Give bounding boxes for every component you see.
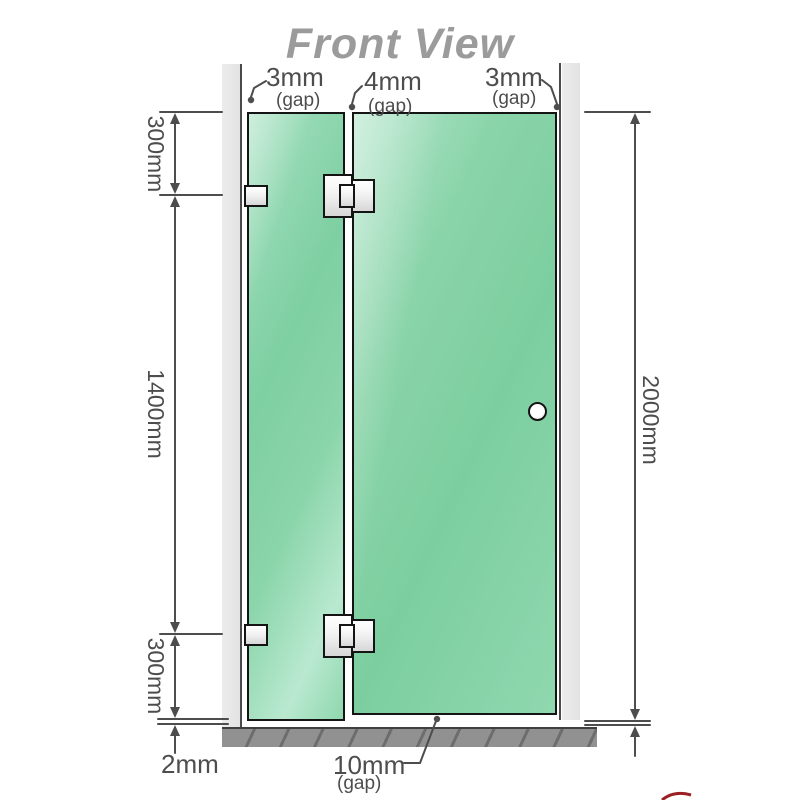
dim-label-300mm-top: 300mm (144, 99, 168, 209)
dim-label-2000mm: 2000mm (639, 365, 663, 475)
wall-bracket-bottom (244, 624, 268, 646)
gap-qualifier-top-left: (gap) (276, 90, 320, 112)
dim-label-300mm-bottom: 300mm (144, 621, 168, 731)
dim-label-2mm: 2mm (161, 749, 219, 780)
left-wall (222, 64, 240, 727)
gap-label-top-middle: 4mm (364, 66, 422, 97)
diagram-title: Front View (0, 20, 800, 69)
right-wall-edge (559, 63, 561, 720)
right-wall (562, 63, 580, 720)
red-logo-mark (662, 793, 691, 800)
front-view-diagram: Front View (0, 0, 800, 800)
left-wall-edge (240, 64, 242, 727)
gap-qualifier-top-middle: (gap) (368, 96, 412, 118)
door-handle-knob (528, 402, 547, 421)
gap-label-top-left: 3mm (266, 62, 324, 93)
wall-bracket-top (244, 185, 268, 207)
gap-qualifier-top-right: (gap) (492, 88, 536, 110)
dim-label-1400mm: 1400mm (144, 359, 168, 469)
hinge-bottom-tab (339, 624, 355, 648)
gap-qualifier-bottom: (gap) (337, 773, 381, 795)
shower-base (222, 727, 597, 747)
door-glass-panel (352, 112, 557, 715)
hinge-top-tab (339, 184, 355, 208)
